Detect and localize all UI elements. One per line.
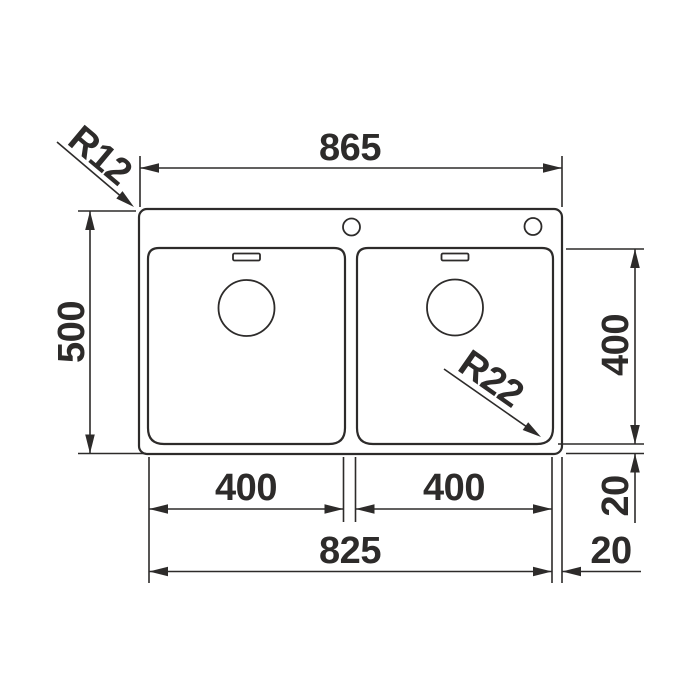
arrowhead — [562, 567, 581, 577]
arrowhead — [85, 211, 95, 230]
arrowhead — [523, 422, 541, 437]
arrowhead — [116, 191, 134, 207]
arrowhead — [149, 504, 168, 514]
faucet-hole-right — [525, 218, 542, 235]
overflow-slot-left — [233, 254, 260, 261]
right-bowl — [357, 248, 553, 444]
arrowhead — [630, 249, 640, 268]
dim-rim-offset-bottom: 20 — [595, 454, 640, 524]
dim-label-overall-depth: 500 — [51, 301, 93, 363]
dim-label-rim-offset-side: 20 — [590, 530, 631, 572]
arrowhead — [533, 504, 552, 514]
arrowhead — [356, 504, 375, 514]
dim-label-bowl-span: 825 — [319, 530, 381, 572]
dim-label-bowl-corner-radius: R22 — [451, 342, 531, 416]
arrowhead — [85, 435, 95, 454]
dim-bowl-depth: 400 — [595, 249, 640, 444]
arrowhead — [630, 454, 640, 473]
arrowhead — [140, 163, 159, 173]
dim-label-overall-width: 865 — [319, 127, 381, 169]
dim-label-outer-corner-radius: R12 — [60, 118, 139, 194]
arrowhead — [630, 425, 640, 444]
arrowhead — [149, 567, 168, 577]
faucet-hole-left — [343, 219, 360, 236]
dim-label-left-bowl-width: 400 — [215, 467, 277, 509]
dim-outer-corner-radius: R12 — [57, 118, 139, 207]
dim-rim-offset-side: 20 — [562, 530, 641, 576]
arrowhead — [543, 163, 562, 173]
overflow-slot-right — [442, 254, 469, 261]
sink-body — [139, 209, 562, 454]
drain-hole-right — [427, 280, 483, 336]
dim-overall-depth: 500 — [51, 211, 146, 454]
dim-label-right-bowl-width: 400 — [423, 467, 485, 509]
sink-technical-drawing: 865 500 R12 R22 400 400 — [0, 0, 700, 700]
dim-left-bowl-width: 400 — [149, 467, 344, 514]
dim-right-bowl-width: 400 — [356, 467, 553, 514]
arrowhead — [533, 567, 552, 577]
dim-bowl-span: 825 — [149, 530, 552, 576]
dim-label-rim-offset-bottom: 20 — [595, 475, 637, 516]
dim-label-bowl-depth: 400 — [595, 314, 637, 376]
drawing-svg: 865 500 R12 R22 400 400 — [0, 0, 700, 700]
dim-bowl-corner-radius: R22 — [444, 342, 541, 437]
arrowhead — [325, 504, 344, 514]
left-bowl — [148, 248, 345, 444]
sink-outer-edge — [139, 209, 562, 454]
dim-overall-width: 865 — [140, 127, 562, 207]
drain-hole-left — [219, 280, 275, 336]
